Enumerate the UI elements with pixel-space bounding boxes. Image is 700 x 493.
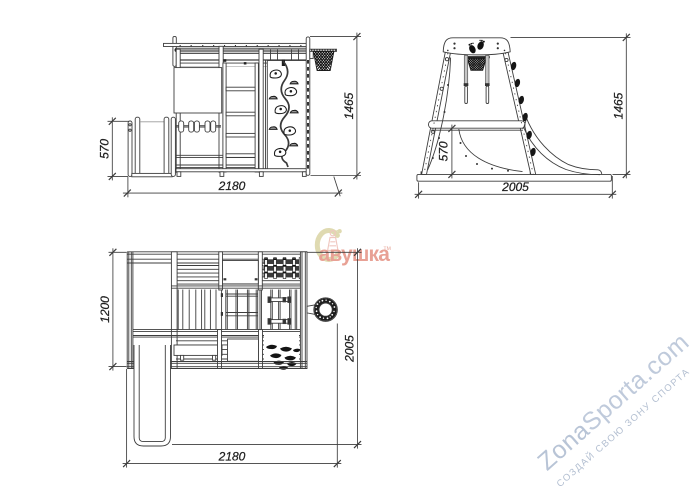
svg-text:1200: 1200 [98, 296, 112, 323]
svg-text:2005: 2005 [343, 335, 357, 363]
svg-text:авушка: авушка [319, 243, 391, 266]
svg-text:2180: 2180 [218, 449, 246, 463]
svg-text:1465: 1465 [342, 92, 356, 119]
svg-text:1465: 1465 [611, 92, 625, 119]
svg-text:570: 570 [436, 141, 450, 161]
svg-text:тм: тм [384, 245, 392, 252]
svg-text:2180: 2180 [218, 179, 246, 193]
svg-text:570: 570 [97, 139, 111, 159]
svg-text:2005: 2005 [501, 180, 529, 194]
